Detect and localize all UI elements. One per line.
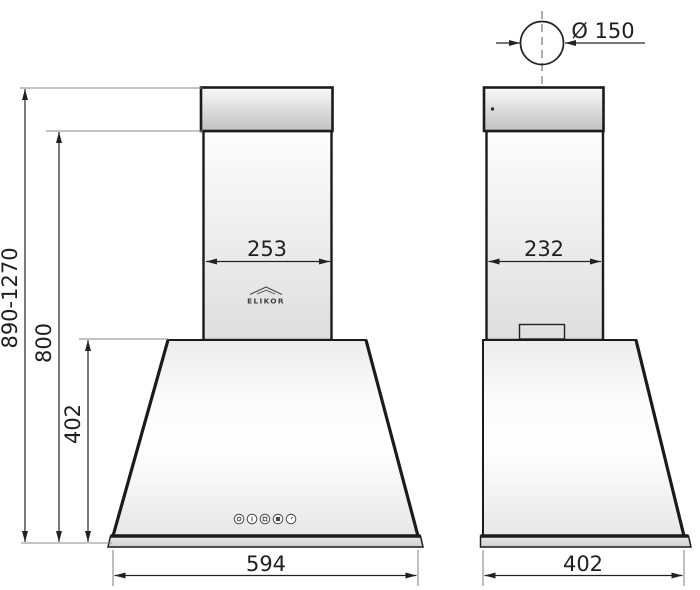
dim-label-chimney-width: 253 <box>247 237 287 261</box>
dim-label-height-to-top: 800 <box>32 323 56 363</box>
dim-label-body-width: 594 <box>246 552 286 576</box>
speed-3-glyph <box>276 517 279 520</box>
side-canopy <box>483 340 684 536</box>
side-chimney-upper <box>484 88 604 132</box>
front-chimney-lower <box>204 131 332 340</box>
dim-label-total-height-range: 890-1270 <box>0 247 22 348</box>
speed-2-button-icon <box>260 514 270 524</box>
dim-label-body-depth: 402 <box>563 552 603 576</box>
light-button-icon <box>234 514 244 524</box>
front-view: ELIKOR <box>108 88 423 548</box>
hood-dimension-drawing: ELIKOR <box>0 0 700 590</box>
dim-label-chimney-depth: 232 <box>524 237 564 261</box>
front-chimney-upper <box>201 88 333 132</box>
brand-logo-text: ELIKOR <box>247 297 285 306</box>
side-chimney-lower <box>487 131 604 340</box>
screw-icon <box>491 107 494 110</box>
side-view <box>481 22 692 548</box>
dim-label-canopy-height: 402 <box>61 404 85 444</box>
drawing-canvas: ELIKOR <box>0 0 700 590</box>
dim-label-duct-diameter: Ø 150 <box>571 19 634 43</box>
